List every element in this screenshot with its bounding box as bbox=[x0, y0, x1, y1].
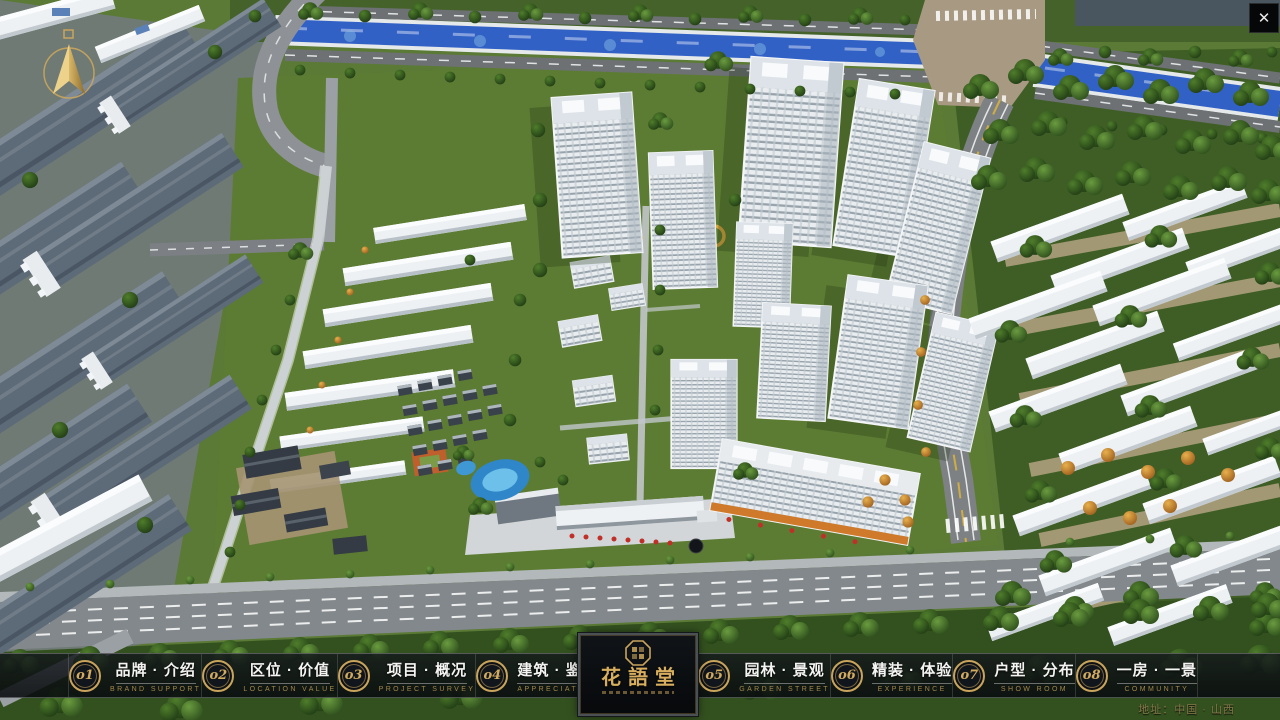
menu-label-en: LOCATION VALUE bbox=[243, 686, 336, 693]
logo-subtitle-ornament bbox=[602, 691, 674, 694]
menu-item-brand-intro[interactable]: o1 品牌 · 介绍 BRAND SUPPORT bbox=[68, 654, 201, 697]
menu-label-zh: 项目 · 概况 bbox=[387, 659, 467, 684]
menu-item-landscape[interactable]: o5 园林 · 景观 GARDEN STREET bbox=[697, 654, 830, 697]
menu-number-badge: o6 bbox=[831, 660, 863, 692]
nav-left-group: o1 品牌 · 介绍 BRAND SUPPORT o2 区位 · 价值 LOCA… bbox=[68, 654, 598, 697]
octagon-seal-icon bbox=[625, 640, 651, 666]
menu-label-en: SHOW ROOM bbox=[1001, 686, 1068, 693]
menu-number-badge: o2 bbox=[202, 660, 234, 692]
sales-presentation-screen: ✕ o1 品牌 · 介绍 BRAND SUPPORT o2 区位 · 价值 LO… bbox=[0, 0, 1280, 720]
menu-label-en: GARDEN STREET bbox=[739, 686, 830, 693]
menu-label-en: COMMUNITY bbox=[1124, 686, 1189, 693]
menu-number-badge: o1 bbox=[69, 660, 101, 692]
menu-item-floorplans[interactable]: o7 户型 · 分布 SHOW ROOM bbox=[952, 654, 1074, 697]
project-name: 花語堂 bbox=[594, 666, 682, 688]
menu-item-room-view[interactable]: o8 一房 · 一景 COMMUNITY bbox=[1075, 654, 1198, 697]
menu-item-location-value[interactable]: o2 区位 · 价值 LOCATION VALUE bbox=[201, 654, 336, 697]
menu-label-en: EXPERIENCE bbox=[878, 686, 947, 693]
menu-item-project-overview[interactable]: o3 项目 · 概况 PROJECT SURVEY bbox=[337, 654, 476, 697]
menu-label-zh: 品牌 · 介绍 bbox=[116, 659, 196, 684]
menu-label-zh: 园林 · 景观 bbox=[744, 659, 824, 684]
close-button[interactable]: ✕ bbox=[1249, 3, 1279, 33]
menu-number-badge: o8 bbox=[1076, 660, 1108, 692]
menu-label-en: BRAND SUPPORT bbox=[110, 686, 201, 693]
masterplan-aerial-view[interactable] bbox=[0, 0, 1280, 720]
close-icon: ✕ bbox=[1258, 11, 1271, 26]
menu-number-badge: o4 bbox=[476, 660, 508, 692]
menu-item-interior-experience[interactable]: o6 精装 · 体验 EXPERIENCE bbox=[830, 654, 952, 697]
project-logo-plaque[interactable]: 花語堂 bbox=[578, 633, 698, 716]
menu-label-zh: 精装 · 体验 bbox=[872, 659, 952, 684]
menu-label-en: PROJECT SURVEY bbox=[379, 686, 476, 693]
menu-number-badge: o7 bbox=[953, 660, 985, 692]
nav-right-group: o5 园林 · 景观 GARDEN STREET o6 精装 · 体验 EXPE… bbox=[697, 654, 1198, 697]
menu-number-badge: o5 bbox=[698, 660, 730, 692]
menu-label-zh: 一房 · 一景 bbox=[1117, 659, 1197, 684]
menu-number-badge: o3 bbox=[338, 660, 370, 692]
project-address: 地址：中国 · 山西 bbox=[1138, 701, 1235, 717]
menu-label-zh: 户型 · 分布 bbox=[994, 659, 1074, 684]
menu-label-zh: 区位 · 价值 bbox=[250, 659, 330, 684]
